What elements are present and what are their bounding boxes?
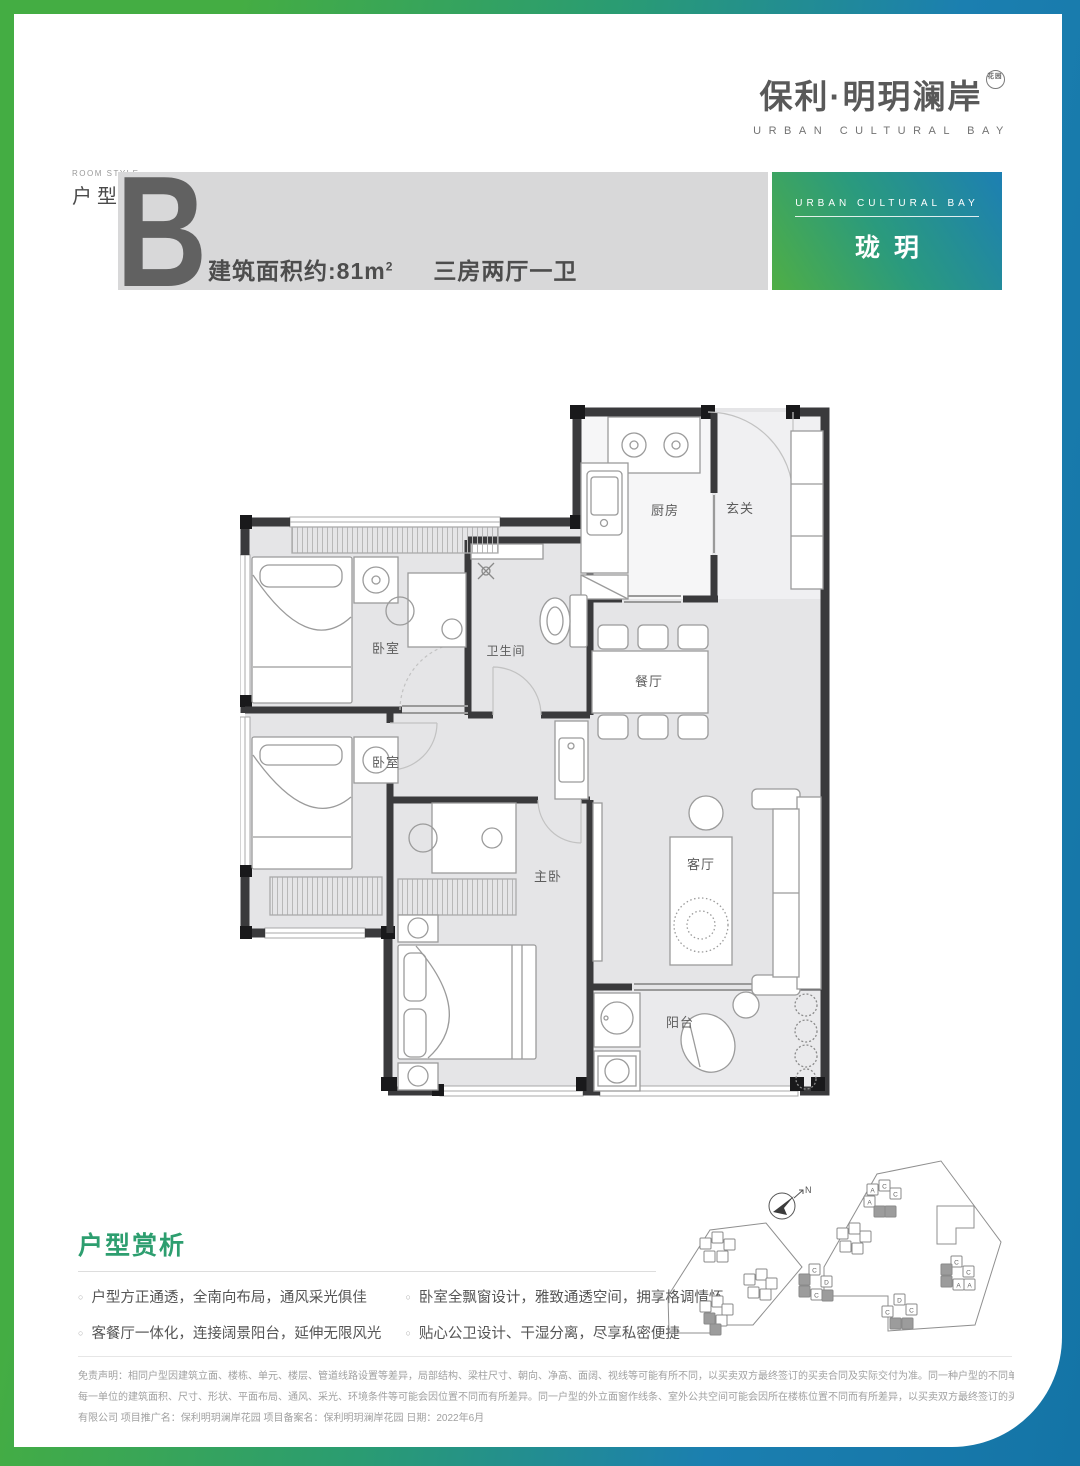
room-label-living: 客厅 — [687, 857, 715, 872]
nightstand-1 — [354, 557, 398, 603]
site-building — [700, 1238, 711, 1249]
site-building — [756, 1269, 767, 1280]
bullet-circle-icon: ○ — [405, 1328, 410, 1338]
bullet-circle-icon: ○ — [405, 1292, 410, 1302]
bed-master — [398, 945, 536, 1059]
site-building-label: C — [882, 1184, 887, 1191]
site-building — [710, 1324, 721, 1335]
poster-frame: 保利·明玥澜岸花园 URBAN CULTURAL BAY ROOM STYLE … — [0, 0, 1080, 1466]
site-building-label: C — [885, 1310, 890, 1317]
analysis-divider — [78, 1271, 656, 1272]
project-badge-en: URBAN CULTURAL BAY — [795, 198, 979, 217]
toilet — [540, 595, 587, 647]
site-building — [885, 1206, 896, 1217]
project-badge: URBAN CULTURAL BAY 珑玥 — [772, 172, 1002, 290]
compass-north-label: N — [805, 1185, 812, 1195]
site-building — [712, 1296, 723, 1307]
room-label-foyer: 玄关 — [726, 501, 754, 516]
site-building-label: C — [909, 1308, 914, 1315]
area-label: 建筑面积约: — [208, 258, 337, 284]
site-building — [874, 1206, 885, 1217]
unit-letter: B — [116, 160, 207, 305]
site-building — [760, 1289, 771, 1300]
site-building-label: A — [870, 1188, 875, 1195]
disclaimer-line: 有限公司 项目推广名：保利明玥澜岸花园 项目备案名：保利明玥澜岸花园 日期：20… — [78, 1408, 1014, 1429]
wardrobe-master — [398, 879, 516, 915]
site-building — [748, 1287, 759, 1298]
room-label-dining: 餐厅 — [635, 674, 663, 689]
site-building — [902, 1318, 913, 1329]
room-label-kitchen: 厨房 — [651, 503, 679, 518]
site-buildings: ACCACDCCCAADCC — [700, 1180, 975, 1335]
site-building-label: A — [867, 1200, 872, 1207]
room-label-master: 主卧 — [534, 869, 562, 884]
site-building — [799, 1286, 810, 1297]
site-building — [852, 1243, 863, 1254]
bullet-text: 户型方正通透，全南向布局，通风采光俱佳 — [91, 1286, 367, 1307]
room-label-bedroom2: 卧室 — [372, 755, 400, 770]
washing-machine — [594, 1051, 640, 1091]
site-building — [766, 1278, 777, 1289]
bay-window-seat — [292, 527, 498, 553]
disclaimer-line: 每一单位的建筑面积、尺寸、形状、平面布局、通风、采光、环境条件等可能会因位置不同… — [78, 1387, 1014, 1408]
compass-icon: N — [769, 1185, 812, 1219]
poster-page: 保利·明玥澜岸花园 URBAN CULTURAL BAY ROOM STYLE … — [14, 14, 1062, 1447]
unit-layout: 三房两厅一卫 — [433, 258, 577, 284]
project-badge-name: 珑玥 — [841, 228, 933, 264]
site-building — [744, 1274, 755, 1285]
wardrobe-2 — [270, 877, 382, 915]
brand-logo: 保利·明玥澜岸花园 URBAN CULTURAL BAY — [732, 70, 1032, 137]
tv-console — [593, 803, 602, 961]
area-sup: 2 — [386, 259, 394, 273]
disclaimer-line: 免责声明：相同户型因建筑立面、楼栋、单元、楼层、管道线路设置等差异，局部结构、梁… — [78, 1366, 1014, 1387]
site-building-label: D — [824, 1280, 829, 1287]
site-building — [890, 1318, 901, 1329]
bullet-circle-icon: ○ — [78, 1292, 83, 1302]
brand-seal-icon: 花园 — [986, 70, 1005, 89]
vanity-basin — [555, 721, 588, 799]
site-building — [941, 1276, 952, 1287]
site-building — [822, 1290, 833, 1301]
site-building-label: C — [812, 1268, 817, 1275]
bullet-circle-icon: ○ — [78, 1328, 83, 1338]
unit-area: 建筑面积约:81m2三房两厅一卫 — [208, 252, 577, 286]
analysis-bullet: ○客餐厅一体化，连接阔景阳台，延伸无限风光 — [78, 1322, 381, 1343]
disclaimer-divider — [78, 1356, 1012, 1357]
balcony-table — [733, 992, 759, 1018]
site-building-label: C — [954, 1260, 959, 1267]
area-value: 81m — [337, 258, 386, 284]
bullet-text: 客餐厅一体化，连接阔景阳台，延伸无限风光 — [91, 1322, 381, 1343]
foyer-wardrobe — [791, 431, 823, 589]
site-building — [717, 1251, 728, 1262]
site-building-label: C — [893, 1192, 898, 1199]
brand-logo-en: URBAN CULTURAL BAY — [732, 125, 1032, 137]
analysis-bullets: ○户型方正通透，全南向布局，通风采光俱佳○卧室全飘窗设计，雅致通透空间，拥享格调… — [78, 1286, 698, 1343]
kitchen-cabinet — [581, 575, 628, 599]
bed-2 — [252, 737, 352, 869]
site-building — [860, 1231, 871, 1242]
side-table — [689, 796, 723, 830]
site-building — [837, 1228, 848, 1239]
disclaimer: 免责声明：相同户型因建筑立面、楼栋、单元、楼层、管道线路设置等差异，局部结构、梁… — [78, 1366, 1014, 1429]
brand-logo-text: 保利·明玥澜岸 — [760, 78, 983, 115]
site-building — [704, 1313, 715, 1324]
brand-logo-cn: 保利·明玥澜岸花园 — [732, 70, 1032, 118]
analysis-title: 户型赏析 — [78, 1226, 186, 1262]
site-building-label: A — [967, 1283, 972, 1290]
site-building — [700, 1301, 711, 1312]
site-plan: ACCACDCCCAADCC N — [654, 1146, 1024, 1361]
site-building — [722, 1304, 733, 1315]
site-building — [799, 1274, 810, 1285]
floor-plan: 厨房 玄关 卫生间 卧室 卧室 餐厅 客厅 主卧 阳台 — [240, 405, 830, 1105]
balcony-sink — [594, 993, 640, 1047]
site-building — [849, 1223, 860, 1234]
site-building-label: D — [897, 1298, 902, 1305]
site-building — [724, 1239, 735, 1250]
analysis-bullet: ○户型方正通透，全南向布局，通风采光俱佳 — [78, 1286, 381, 1307]
site-building-label: C — [966, 1270, 971, 1277]
site-building-label: A — [956, 1283, 961, 1290]
site-building — [941, 1264, 952, 1275]
site-building — [840, 1241, 851, 1252]
site-building — [704, 1251, 715, 1262]
room-label-bedroom1: 卧室 — [372, 641, 400, 656]
bed-1 — [252, 557, 352, 703]
bullet-text: 贴心公卫设计、干湿分离，尽享私密便捷 — [419, 1322, 680, 1343]
site-building-label: C — [814, 1293, 819, 1300]
room-label-bathroom: 卫生间 — [486, 644, 525, 658]
kitchen-sink — [581, 463, 628, 573]
room-label-balcony: 阳台 — [666, 1015, 694, 1030]
site-building — [712, 1232, 723, 1243]
